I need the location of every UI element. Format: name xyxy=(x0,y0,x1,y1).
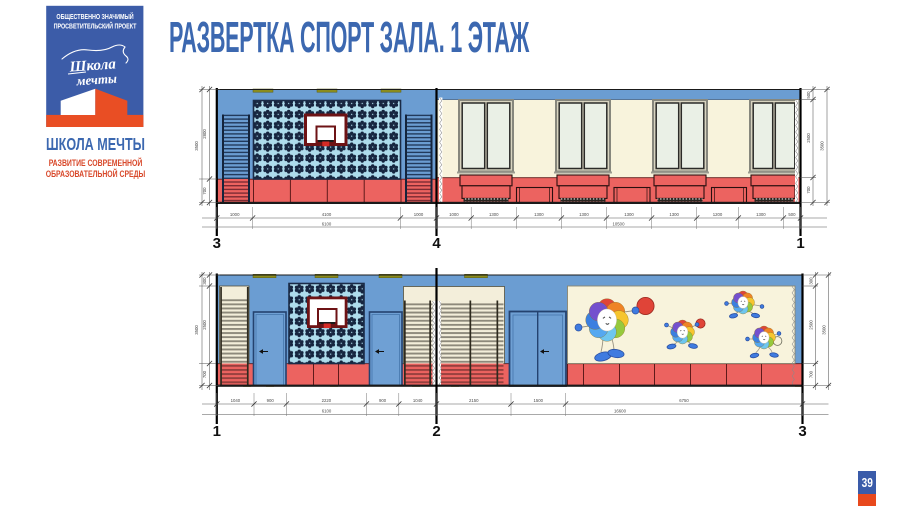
svg-text:2220: 2220 xyxy=(322,398,332,403)
svg-text:2150: 2150 xyxy=(469,398,479,403)
svg-text:1: 1 xyxy=(213,423,221,440)
svg-text:2500: 2500 xyxy=(806,133,811,143)
svg-text:1000: 1000 xyxy=(449,212,459,217)
svg-text:6100: 6100 xyxy=(322,409,332,414)
svg-text:ОБРАЗОВАТЕЛЬНОЙ СРЕДЫ: ОБРАЗОВАТЕЛЬНОЙ СРЕДЫ xyxy=(46,167,146,180)
svg-text:3500: 3500 xyxy=(194,325,199,335)
svg-text:ОБЩЕСТВЕННО ЗНАЧИМЫЙ: ОБЩЕСТВЕННО ЗНАЧИМЫЙ xyxy=(56,11,134,21)
svg-text:мечты: мечты xyxy=(75,71,117,89)
svg-text:500: 500 xyxy=(788,212,796,217)
svg-text:300: 300 xyxy=(808,277,813,285)
svg-text:700: 700 xyxy=(202,370,207,378)
svg-text:1300: 1300 xyxy=(669,212,679,217)
svg-text:6750: 6750 xyxy=(679,398,689,403)
svg-text:1040: 1040 xyxy=(231,398,241,403)
svg-text:3: 3 xyxy=(798,423,806,440)
svg-text:3: 3 xyxy=(213,235,221,252)
svg-text:1500: 1500 xyxy=(534,398,544,403)
svg-text:2500: 2500 xyxy=(202,320,207,330)
svg-text:1300: 1300 xyxy=(534,212,544,217)
svg-text:700: 700 xyxy=(808,370,813,378)
svg-text:3500: 3500 xyxy=(821,325,826,335)
svg-text:РАЗВИТИЕ СОВРЕМЕННОЙ: РАЗВИТИЕ СОВРЕМЕННОЙ xyxy=(49,156,143,169)
svg-text:500: 500 xyxy=(806,91,811,99)
svg-text:700: 700 xyxy=(202,187,207,195)
svg-text:3500: 3500 xyxy=(194,141,199,151)
svg-text:2500: 2500 xyxy=(808,320,813,330)
svg-text:4100: 4100 xyxy=(322,212,332,217)
svg-text:700: 700 xyxy=(806,186,811,194)
svg-text:3500: 3500 xyxy=(820,141,825,151)
svg-text:6100: 6100 xyxy=(322,221,332,226)
svg-text:900: 900 xyxy=(379,398,387,403)
svg-text:4: 4 xyxy=(432,235,441,252)
svg-text:ПРОСВЕТИТЕЛЬСКИЙ ПРОЕКТ: ПРОСВЕТИТЕЛЬСКИЙ ПРОЕКТ xyxy=(54,21,137,31)
svg-text:1040: 1040 xyxy=(413,398,423,403)
svg-text:1300: 1300 xyxy=(489,212,499,217)
svg-text:10500: 10500 xyxy=(613,221,626,226)
svg-text:1200: 1200 xyxy=(713,212,723,217)
svg-text:ШКОЛА МЕЧТЫ: ШКОЛА МЕЧТЫ xyxy=(46,135,145,155)
svg-text:900: 900 xyxy=(267,398,275,403)
svg-text:1300: 1300 xyxy=(756,212,766,217)
svg-text:1000: 1000 xyxy=(230,212,240,217)
svg-text:1300: 1300 xyxy=(579,212,589,217)
svg-text:1300: 1300 xyxy=(624,212,634,217)
svg-text:16600: 16600 xyxy=(614,409,627,414)
svg-text:300: 300 xyxy=(202,277,207,285)
svg-text:2: 2 xyxy=(432,423,440,440)
svg-text:1: 1 xyxy=(796,235,804,252)
svg-text:2800: 2800 xyxy=(202,129,207,139)
svg-text:1000: 1000 xyxy=(414,212,424,217)
